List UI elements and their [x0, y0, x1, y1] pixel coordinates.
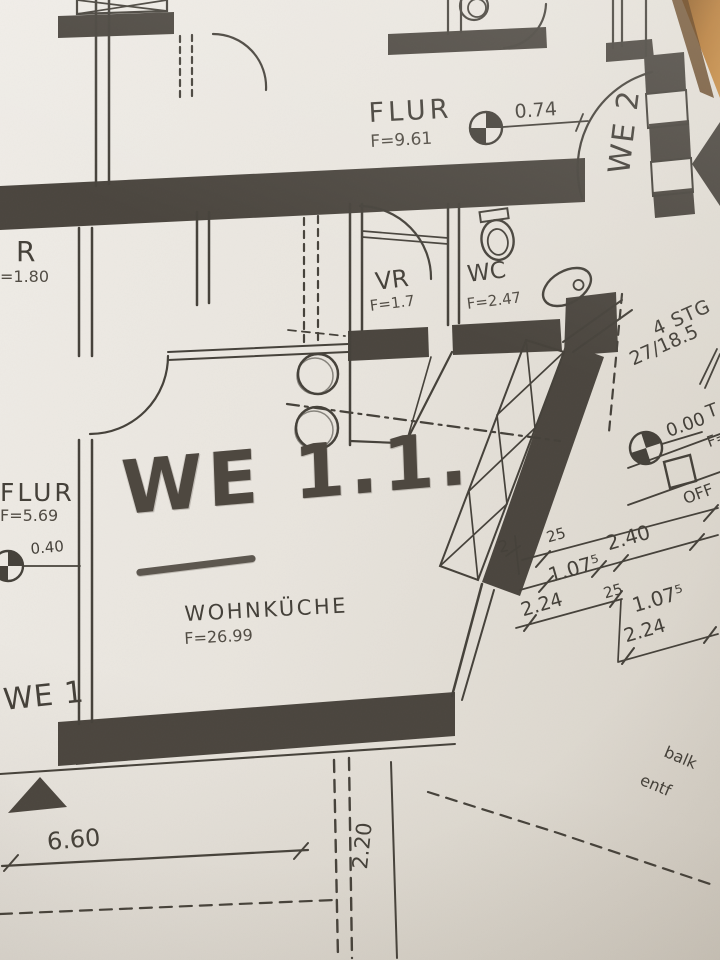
room-area-wc: F=2.47 — [466, 290, 522, 312]
dim-chain-left: 2 — [497, 538, 510, 556]
partial-label-t: T — [704, 401, 720, 422]
room-name-r: R — [16, 238, 35, 266]
partial-label-entf: entf — [638, 772, 674, 799]
room-area-flur-left: F=5.69 — [0, 508, 58, 524]
plan-labels: FLUR F=9.61 0.74 WE 2 R =1.80 FLUR F=5.6… — [0, 0, 720, 960]
room-name-flur-left: FLUR — [0, 480, 75, 505]
room-area-r: =1.80 — [0, 269, 49, 285]
partial-label-offen: OFF — [681, 481, 716, 507]
room-area-flur-top: F=9.61 — [370, 131, 433, 151]
dim-depth-right: 2.20 — [350, 821, 376, 870]
dim-224a: 2.24 — [519, 590, 565, 620]
unit-label-we2: WE 2 — [605, 87, 645, 175]
partial-label-balk: balk — [662, 744, 699, 772]
dim-107a: 1.07⁵ — [546, 552, 602, 586]
dim-240: 2.40 — [604, 522, 652, 553]
dim-25b: 25 — [602, 582, 624, 602]
unit-label-we1: WE 1 — [2, 678, 86, 716]
level-value-left: 0.40 — [30, 539, 65, 557]
dim-224b: 2.24 — [622, 616, 668, 646]
dim-107b: 1.07⁵ — [630, 582, 686, 616]
room-name-flur-top: FLUR — [368, 96, 453, 127]
dim-width-bottom: 6.60 — [46, 825, 101, 854]
room-area-vr: F=1.7 — [369, 294, 416, 314]
floor-plan-photo: FLUR F=9.61 0.74 WE 2 R =1.80 FLUR F=5.6… — [0, 0, 720, 960]
dim-25a: 25 — [545, 526, 567, 546]
handwritten-unit-label: WE 1.1. — [120, 421, 473, 526]
handwritten-underline — [136, 555, 256, 577]
room-name-vr: VR — [374, 266, 410, 294]
room-name-wohnkueche: WOHNKÜCHE — [184, 595, 348, 625]
level-value-landing: 0.00 — [664, 410, 708, 441]
partial-label-f: F= — [705, 429, 720, 450]
level-value-flur: 0.74 — [514, 100, 558, 122]
room-name-wc: WC — [466, 259, 507, 287]
room-area-wohnkueche: F=26.99 — [184, 627, 253, 647]
